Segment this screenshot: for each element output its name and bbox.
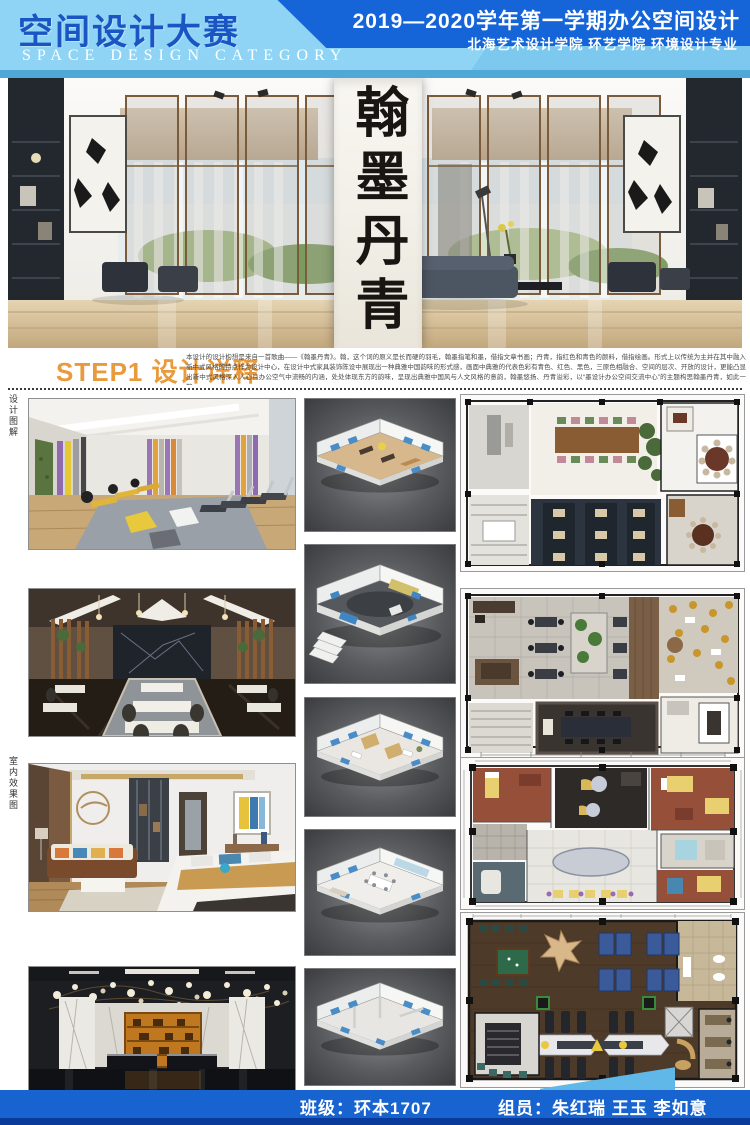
side-label-renders: 室内效果图 (7, 756, 20, 811)
office-floor-plan (460, 588, 745, 758)
step1-section: STEP1 设计详释 本设计的设计构想是来自一首歌曲——《翰墨丹青》。翰，这个词… (8, 350, 742, 388)
school-title: 北海艺术设计学院 环艺学院 环境设计专业 (467, 33, 738, 53)
header: 空间设计大赛 SPACE DESIGN CATEGORY 2019—2020学年… (0, 0, 750, 78)
term-title: 2019—2020学年第一学期办公空间设计 (353, 5, 740, 35)
calligraphy-text: 翰墨丹青 (351, 84, 405, 340)
guestroom-floor-plan (460, 757, 745, 910)
axon-model-3 (304, 697, 456, 817)
footer: 班级：环本1707 组员：朱红瑞 王玉 李如意 (0, 1090, 750, 1118)
poster-title-en: SPACE DESIGN CATEGORY (22, 47, 347, 65)
calligraphy-scroll: 翰墨丹青 (334, 78, 422, 348)
class-label: 班级：环本1707 (300, 1094, 432, 1119)
footer-navy-strip (0, 1118, 750, 1125)
side-label-diagram: 设计图解 (7, 394, 20, 438)
poster: 空间设计大赛 SPACE DESIGN CATEGORY 2019—2020学年… (0, 0, 750, 1125)
header-bottom-strip (0, 70, 750, 78)
dotted-divider (8, 388, 742, 390)
gym-render (28, 398, 296, 550)
bedroom-render (28, 763, 296, 912)
lobby-render (28, 966, 296, 1092)
step1-paragraph: 本设计的设计构想是来自一首歌曲——《翰墨丹青》。翰，这个词的原义是长而硬的羽毛，… (186, 353, 746, 385)
axon-model-1 (304, 398, 456, 532)
axon-model-5 (304, 968, 456, 1086)
axon-model-4 (304, 829, 456, 956)
hero-image: 翰墨丹青 (8, 78, 742, 348)
gym-floor-plan (460, 912, 745, 1088)
dining-hall-render (28, 588, 296, 737)
restaurant-floor-plan (460, 394, 745, 572)
members-label: 组员：朱红瑞 王玉 李如意 (498, 1094, 707, 1119)
axon-model-2 (304, 544, 456, 684)
